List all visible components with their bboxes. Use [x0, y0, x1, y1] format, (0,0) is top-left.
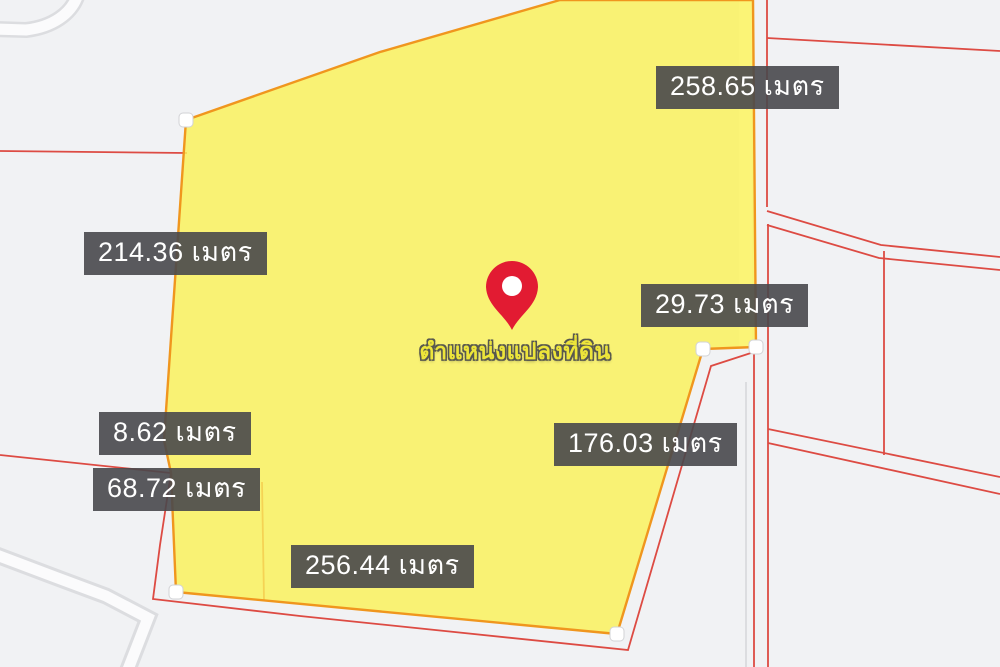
vertex-marker: [610, 627, 624, 641]
measurement-label-176-03: 176.03 เมตร: [554, 423, 737, 466]
vertex-marker: [179, 113, 193, 127]
measurement-label-258-65: 258.65 เมตร: [656, 66, 839, 109]
measurement-label-214-36: 214.36 เมตร: [84, 232, 267, 275]
measurement-label-256-44: 256.44 เมตร: [291, 545, 474, 588]
map-canvas[interactable]: ตำแหน่งแปลงที่ดิน 258.65 เมตร 214.36 เมต…: [0, 0, 1000, 667]
vertex-marker: [749, 340, 763, 354]
measurement-label-68-72: 68.72 เมตร: [93, 468, 260, 511]
vertex-marker: [696, 342, 710, 356]
measurement-label-29-73: 29.73 เมตร: [641, 284, 808, 327]
measurement-label-8-62: 8.62 เมตร: [99, 412, 251, 455]
vertex-marker: [169, 585, 183, 599]
parcel-caption: ตำแหน่งแปลงที่ดิน: [385, 334, 645, 370]
